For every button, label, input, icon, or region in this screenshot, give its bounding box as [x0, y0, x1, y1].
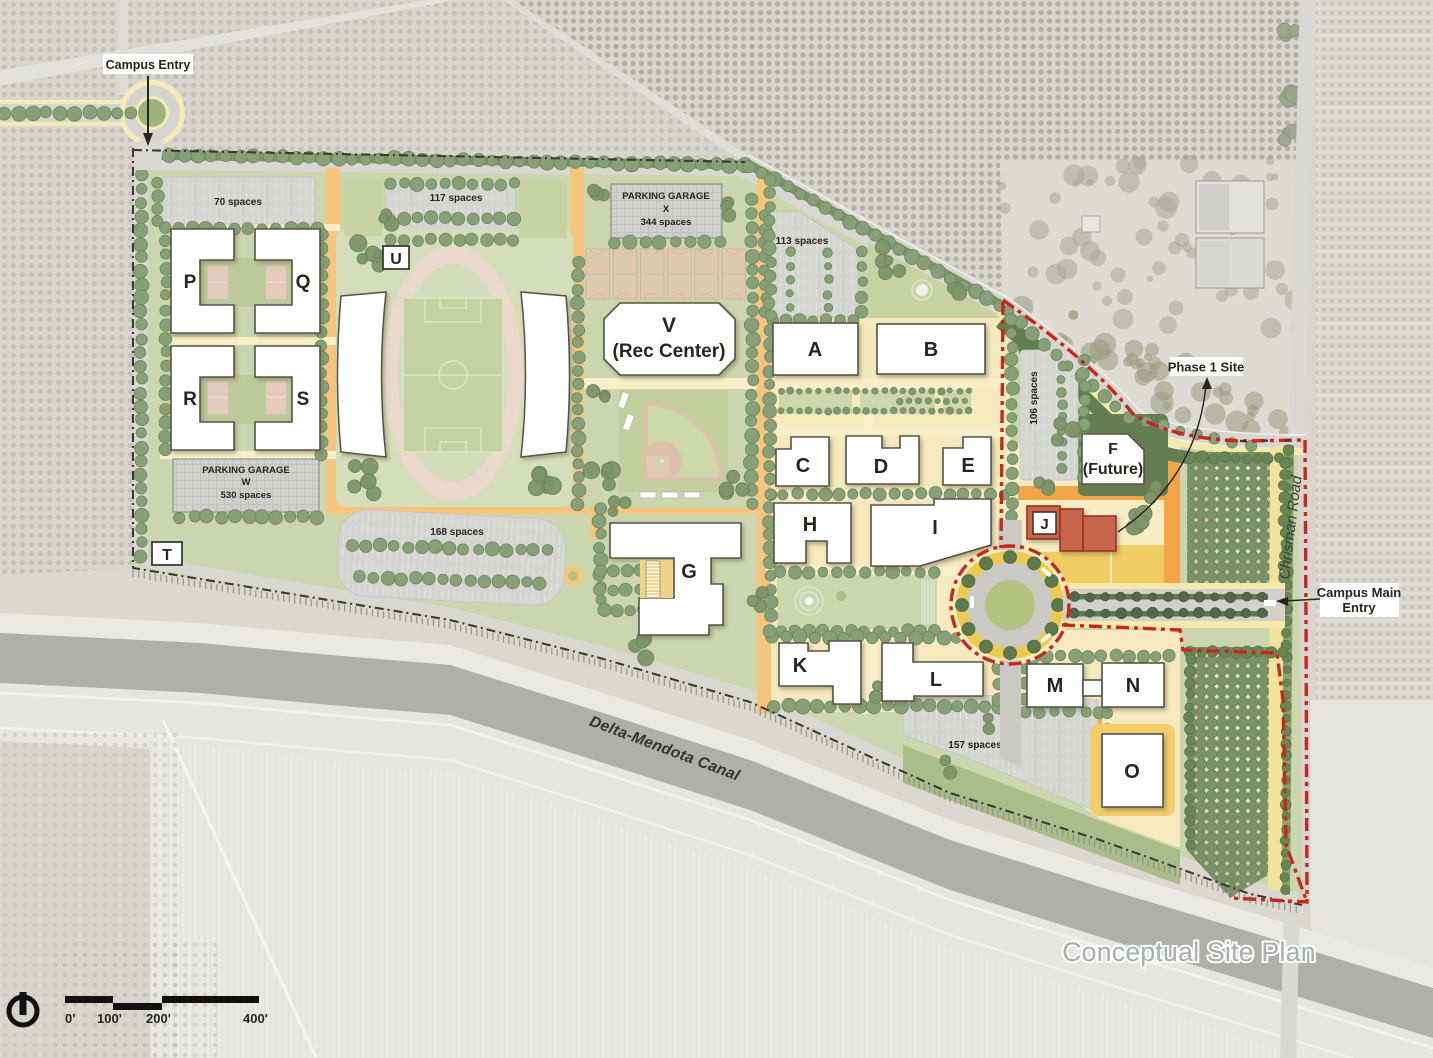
svg-text:106 spaces: 106 spaces: [1029, 371, 1040, 425]
svg-text:PARKING GARAGE: PARKING GARAGE: [202, 465, 289, 476]
svg-text:U: U: [390, 251, 402, 268]
svg-text:B: B: [924, 339, 938, 361]
svg-text:0': 0': [65, 1011, 75, 1026]
svg-text:F: F: [1108, 441, 1118, 458]
svg-text:PARKING GARAGE: PARKING GARAGE: [622, 191, 709, 202]
svg-text:344 spaces: 344 spaces: [641, 217, 692, 228]
svg-text:530 spaces: 530 spaces: [221, 490, 272, 501]
svg-text:157 spaces: 157 spaces: [948, 740, 1002, 751]
svg-text:K: K: [793, 655, 808, 677]
svg-text:I: I: [932, 517, 938, 539]
svg-text:M: M: [1047, 675, 1064, 697]
svg-text:70 spaces: 70 spaces: [214, 197, 262, 208]
svg-text:Entry: Entry: [1342, 600, 1376, 615]
svg-text:J: J: [1040, 516, 1048, 533]
svg-text:X: X: [663, 204, 670, 215]
svg-text:H: H: [803, 514, 817, 536]
svg-text:E: E: [961, 455, 974, 477]
svg-text:200': 200': [146, 1011, 171, 1026]
svg-text:G: G: [681, 561, 697, 583]
svg-text:R: R: [183, 389, 197, 410]
svg-text:Campus Main: Campus Main: [1317, 585, 1402, 600]
svg-text:Conceptual Site Plan: Conceptual Site Plan: [1062, 937, 1316, 967]
svg-text:W: W: [242, 477, 251, 488]
svg-text:A: A: [808, 339, 822, 361]
svg-text:O: O: [1124, 761, 1140, 783]
svg-text:T: T: [162, 547, 172, 564]
svg-text:S: S: [297, 389, 310, 410]
svg-text:117 spaces: 117 spaces: [430, 193, 483, 204]
svg-text:P: P: [184, 272, 197, 293]
svg-text:168 spaces: 168 spaces: [430, 527, 484, 538]
svg-text:Campus Entry: Campus Entry: [106, 58, 191, 72]
svg-text:Q: Q: [296, 272, 311, 293]
svg-text:113 spaces: 113 spaces: [776, 236, 829, 247]
svg-text:D: D: [874, 456, 888, 478]
svg-text:V: V: [662, 314, 676, 337]
svg-text:(Rec Center): (Rec Center): [613, 341, 726, 362]
svg-text:Phase 1 Site: Phase 1 Site: [1168, 360, 1245, 375]
svg-text:400': 400': [243, 1011, 268, 1026]
svg-text:C: C: [796, 455, 810, 477]
svg-text:(Future): (Future): [1083, 461, 1143, 478]
svg-text:N: N: [1126, 675, 1140, 697]
svg-text:L: L: [930, 669, 942, 691]
svg-text:100': 100': [97, 1011, 122, 1026]
